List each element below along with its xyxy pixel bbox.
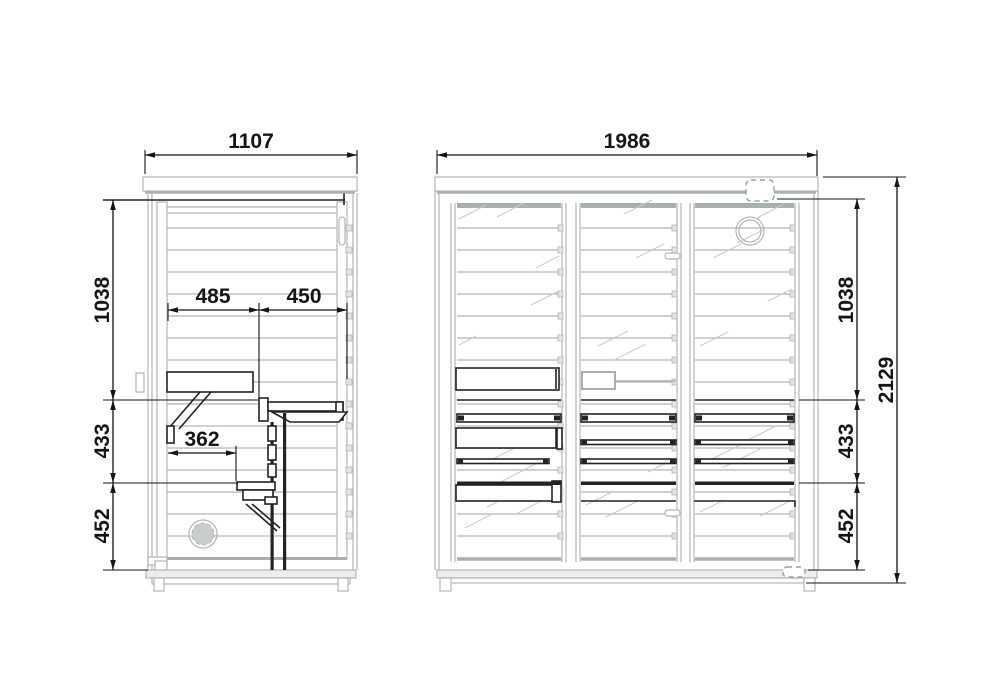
dim-right-lower-label: 452 xyxy=(835,508,858,543)
door-hinge-icon xyxy=(136,373,144,392)
technical-drawing: 1107 1986 485 450 362 1038 433 452 1038 … xyxy=(0,0,1000,700)
front-benches xyxy=(456,368,795,507)
dim-bench-back-label: 485 xyxy=(195,285,230,308)
backrest-board xyxy=(167,372,253,392)
heater-fan-icon xyxy=(189,520,217,548)
dim-right-upper-label: 1038 xyxy=(835,276,858,323)
side-door-post xyxy=(157,202,167,558)
front-base xyxy=(437,570,817,578)
side-foot-left xyxy=(154,578,164,591)
front-foot-right xyxy=(804,578,815,591)
front-view xyxy=(435,177,818,591)
side-base xyxy=(146,570,356,578)
dim-left-upper-label: 1038 xyxy=(91,276,114,323)
dimensions: 1107 1986 485 450 362 1038 433 452 1038 … xyxy=(91,130,906,583)
dim-step-label: 362 xyxy=(184,428,219,451)
dim-front-width-label: 1986 xyxy=(604,130,651,153)
side-front-post xyxy=(337,202,347,558)
door-handle-icon xyxy=(339,217,345,245)
door-handle-bottom-icon xyxy=(665,510,680,516)
dim-left-lower-label: 452 xyxy=(91,508,114,543)
upper-bench-section xyxy=(259,398,347,422)
side-view xyxy=(103,177,357,591)
door-handle-top-icon xyxy=(665,253,680,259)
dim-left-middle-label: 433 xyxy=(91,423,114,458)
control-box xyxy=(582,372,615,389)
dim-side-width-label: 1107 xyxy=(228,130,274,153)
side-foot-right xyxy=(338,578,348,591)
foot-adjuster-icon xyxy=(783,567,805,577)
front-foot-left xyxy=(440,578,451,591)
dim-bench-front-label: 450 xyxy=(286,285,321,308)
side-backrest-through-glass xyxy=(456,368,559,390)
side-roof xyxy=(143,177,357,191)
roof-vent-icon xyxy=(746,180,774,201)
dim-overall-height-label: 2129 xyxy=(875,357,898,404)
dim-right-middle-label: 433 xyxy=(835,423,858,458)
